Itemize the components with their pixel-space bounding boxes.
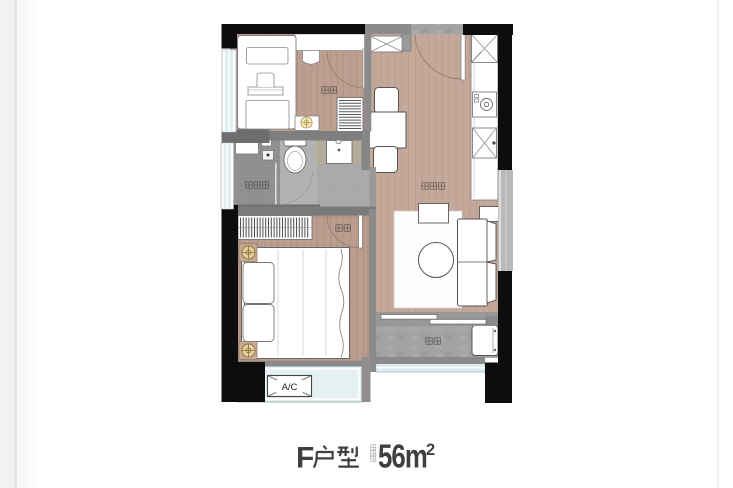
svg-text:A/C: A/C [282,382,298,393]
svg-text:56m: 56m [378,438,427,475]
svg-text:F: F [296,442,314,475]
svg-text:2: 2 [426,441,435,459]
